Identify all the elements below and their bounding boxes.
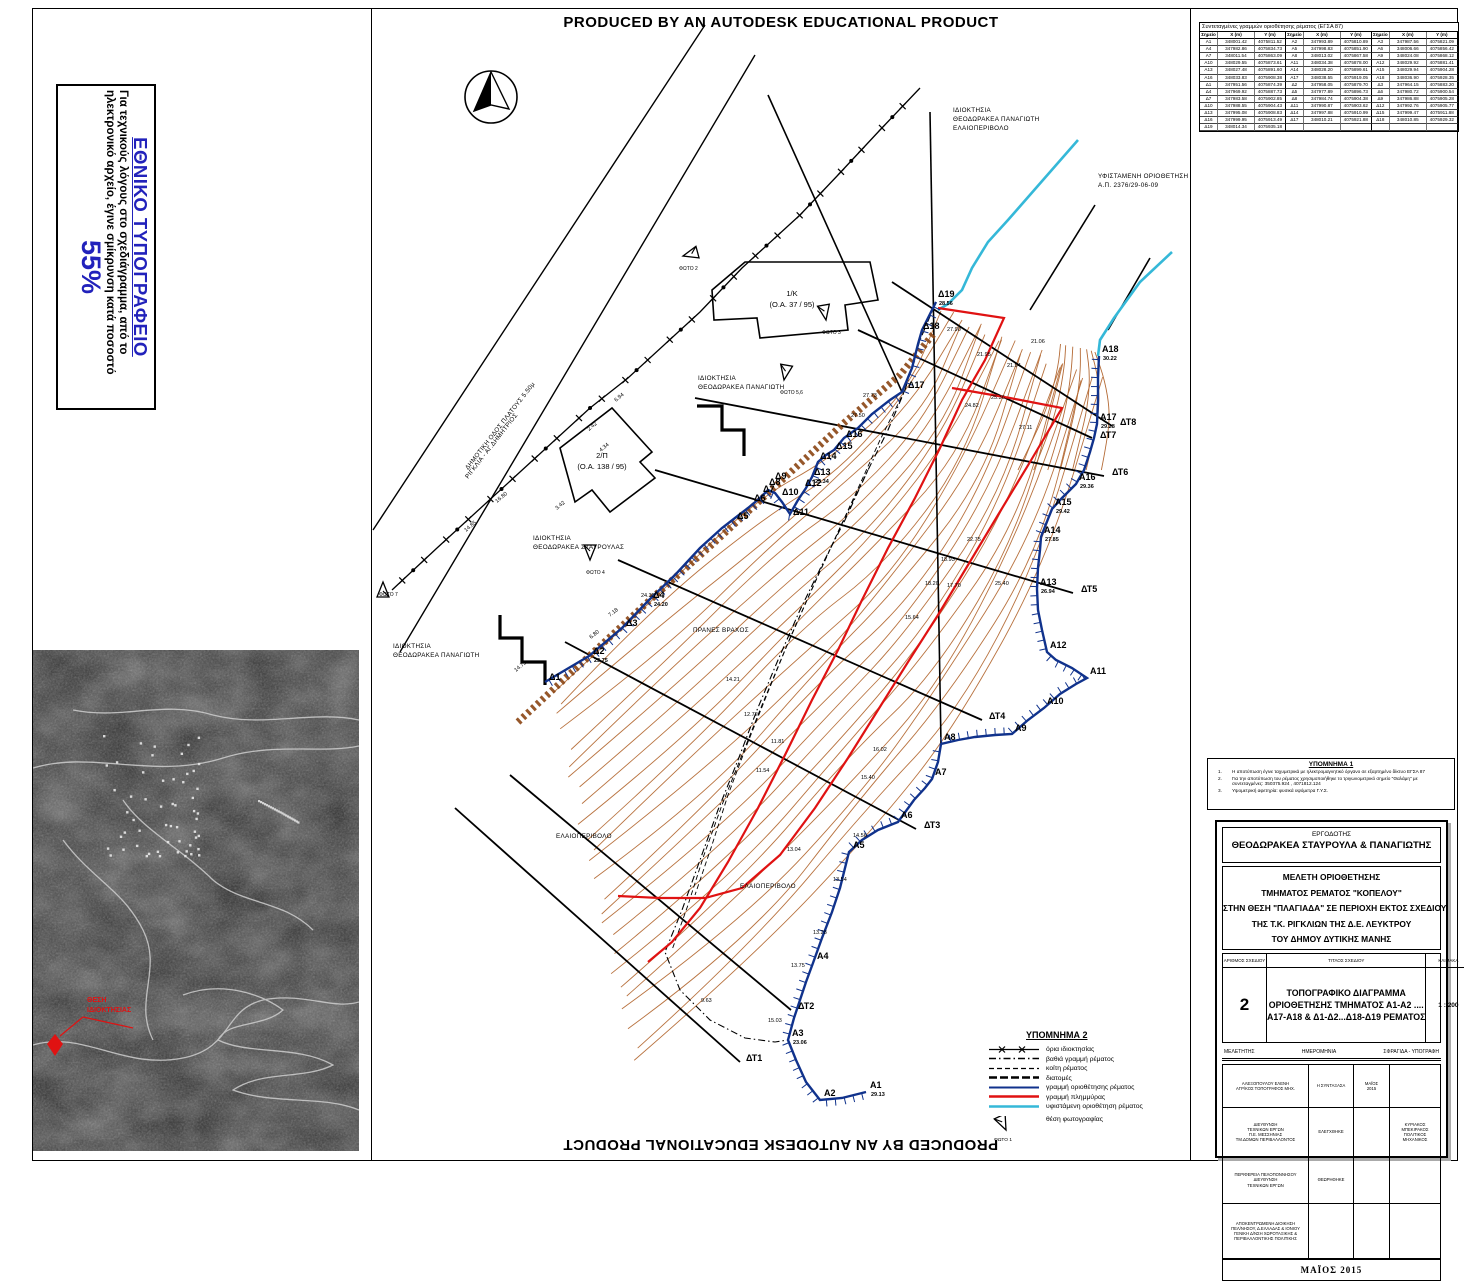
legend-item-existing: υφιστάμενη οριοθέτηση ρέματος bbox=[988, 1102, 1156, 1112]
coords-cell: 347964.15 bbox=[1390, 82, 1427, 89]
coords-cell: Δ18 bbox=[1372, 117, 1390, 124]
map-area-label: ΔΗΜΟΤΙΚΗ ΟΔΟΣ ΠΛΑΤΟΥΣ 5.50μ bbox=[464, 381, 537, 471]
map-point-label: Δ9 bbox=[775, 471, 786, 481]
map-area-label: ΕΛΑΙΟΠΕΡΙΒΟΛΟ bbox=[740, 883, 796, 890]
coords-cell: Α3 bbox=[1372, 39, 1390, 46]
coords-cell: Α15 bbox=[1372, 67, 1390, 74]
coords-cell: 347998.83 bbox=[1304, 46, 1341, 53]
coords-cell: 4075867.58 bbox=[1341, 53, 1372, 60]
coords-cell: 348013.02 bbox=[1304, 53, 1341, 60]
legend-item-label: υφιστάμενη οριοθέτηση ρέματος bbox=[1046, 1103, 1143, 1110]
coords-cell: 348001.42 bbox=[1218, 39, 1255, 46]
photo-position-icon: ΦΩΤΟ 3 bbox=[817, 304, 840, 336]
map-point-label: Δ3 bbox=[626, 618, 637, 628]
coords-cell: 4075921.88 bbox=[1341, 117, 1372, 124]
map-point-label: Α4 bbox=[817, 951, 829, 961]
signature-cell: ΚΥΡΙΑΚΟΣ ΜΠΕΚΙΡΑΚΟΣΠΟΛΙΤΙΚΟΣ ΜΗΧΑΝΙΚΟΣ bbox=[1390, 1108, 1440, 1157]
map-measure: 7.18 bbox=[608, 607, 620, 618]
coords-cell: Α8 bbox=[1286, 53, 1304, 60]
drawing-scale-header: ΚΛΙΜΑΚΑ bbox=[1426, 954, 1464, 968]
map-point-label: ΔΤ3 bbox=[924, 820, 940, 830]
map-point-elevation: 28.56 bbox=[939, 301, 953, 307]
map-measure: 13.54 bbox=[833, 877, 847, 883]
coords-cell: 4075879.70 bbox=[1341, 82, 1372, 89]
coords-cell: Α4 bbox=[1200, 46, 1218, 53]
signature-grid: ΑΛΕΞΟΠΟΥΛΟΥ ΕΛΕΝΗΑΓΡ/ΚΟΣ ΤΟΠΟΓΡΑΦΟΣ ΜΗΧ.… bbox=[1222, 1064, 1441, 1259]
map-labels: Δ1Δ223.75Δ3Δ424.20Δ5Δ6Δ7Δ8Δ9Δ10Δ11Δ12Δ13… bbox=[377, 107, 1189, 1098]
coords-cell: Δ4 bbox=[1200, 89, 1218, 96]
map-area-label: ΙΔΙΟΚΤΗΣΙΑ bbox=[393, 643, 432, 650]
map-point-elevation: 27.85 bbox=[1045, 537, 1059, 543]
coords-cell: 4075810.89 bbox=[1341, 39, 1372, 46]
coords-cell: 4075904.43 bbox=[1255, 103, 1286, 110]
note-box: ΥΠΟΜΝΗΜΑ 1 1.Η αποτύπωση έγινε ταχυμετρι… bbox=[1207, 758, 1455, 810]
coords-cell: Δ13 bbox=[1200, 110, 1218, 117]
signature-cell bbox=[1390, 1157, 1440, 1204]
drawing-title-line: ΟΡΙΟΘΕΤΗΣΗΣ ΤΜΗΜΑΤΟΣ Α1-Α2 .... bbox=[1269, 999, 1424, 1011]
coords-cell: 348029.55 bbox=[1218, 60, 1255, 67]
map-point-elevation: 23.06 bbox=[793, 1040, 807, 1046]
map-point-label: ΔΤ8 bbox=[1120, 417, 1136, 427]
study-title-line: ΤΜΗΜΑΤΟΣ ΡΕΜΑΤΟΣ "ΚΟΠΕΛΟΥ" bbox=[1223, 886, 1440, 902]
coords-cell: 348034.38 bbox=[1304, 60, 1341, 67]
coords-cell: 347987.56 bbox=[1390, 39, 1427, 46]
coords-cell: 348029.94 bbox=[1390, 67, 1427, 74]
coords-cell: 347995.08 bbox=[1218, 110, 1255, 117]
map-area-label: ΘΕΟΔΩΡΑΚΕΑ ΠΑΝΑΓΙΩΤΗ bbox=[393, 652, 480, 659]
map-measure: 21.95 bbox=[977, 352, 991, 358]
coords-cell: 347999.95 bbox=[1218, 117, 1255, 124]
coords-cell: Δ16 bbox=[1200, 117, 1218, 124]
map-point-label: Α8 bbox=[944, 732, 956, 742]
drawing-title-line: ΤΟΠΟΓΡΑΦΙΚΟ ΔΙΑΓΡΑΜΜΑ bbox=[1286, 987, 1405, 999]
coords-cell: 347983.58 bbox=[1218, 96, 1255, 103]
map-point-label: Α1 bbox=[870, 1080, 882, 1090]
map-point-label: Δ18 bbox=[923, 321, 939, 331]
role-cell: ΘΕΩΡΗΘΗΚΕ bbox=[1309, 1157, 1354, 1204]
coords-cell: 347993.89 bbox=[1304, 39, 1341, 46]
legend-item-photo: ΦΩΤΟ 1θέση φωτογραφίας bbox=[988, 1116, 1156, 1146]
map-measure: 6.80 bbox=[589, 629, 601, 640]
coords-cell: 347992.76 bbox=[1390, 103, 1427, 110]
coords-cell: 347982.86 bbox=[1218, 46, 1255, 53]
map-point-label: ΔΤ5 bbox=[1081, 584, 1097, 594]
map-point-label: Δ13 bbox=[814, 467, 830, 477]
coords-header-cell: Y (m) bbox=[1427, 32, 1458, 39]
note-item: 2.Για την αποτύπωση του ρέματος χρησιμοπ… bbox=[1212, 776, 1450, 787]
map-measure: 27.73 bbox=[863, 393, 877, 399]
coords-cell: Δ10 bbox=[1200, 103, 1218, 110]
coords-cell: Δ17 bbox=[1286, 117, 1304, 124]
photo-position-icon: ΦΩΤΟ 7 bbox=[377, 582, 398, 598]
signature-cell bbox=[1390, 1065, 1440, 1108]
coords-header-cell: Σημείο bbox=[1372, 32, 1390, 39]
coords-cell: 4075868.12 bbox=[1427, 53, 1458, 60]
coords-cell bbox=[1372, 124, 1390, 131]
role-sig: ΣΦΡΑΓΙΔΑ - ΥΠΟΓΡΑΦΗ bbox=[1383, 1049, 1439, 1055]
map-measure: 27.11 bbox=[1019, 425, 1032, 431]
coords-cell: Δ5 bbox=[1286, 89, 1304, 96]
coords-cell: Α9 bbox=[1372, 53, 1390, 60]
coords-cell: Α1 bbox=[1200, 39, 1218, 46]
coords-cell: Δ6 bbox=[1372, 89, 1390, 96]
svg-text:ΦΩΤΟ 1: ΦΩΤΟ 1 bbox=[994, 1137, 1012, 1142]
coords-cell: Δ1 bbox=[1200, 82, 1218, 89]
coords-cell: 348024.08 bbox=[1390, 53, 1427, 60]
coords-cell: 4075904.38 bbox=[1341, 96, 1372, 103]
legend-item-label: θέση φωτογραφίας bbox=[1046, 1116, 1103, 1123]
coords-cell: 4075908.38 bbox=[1255, 75, 1286, 82]
coordinates-table-title: Συντεταγμένες γραμμών οριοθέτησης ρέματο… bbox=[1200, 23, 1458, 32]
map-measure: 24.82 bbox=[965, 403, 979, 409]
study-title-line: ΜΕΛΕΤΗ ΟΡΙΟΘΕΤΗΣΗΣ bbox=[1223, 870, 1440, 886]
date-cell bbox=[1354, 1204, 1390, 1259]
coords-header-cell: Y (m) bbox=[1255, 32, 1286, 39]
role-melet: ΜΕΛΕΤΗΤΗΣ bbox=[1224, 1049, 1255, 1055]
coords-cell: 348038.55 bbox=[1304, 75, 1341, 82]
coords-cell: Α14 bbox=[1286, 67, 1304, 74]
coords-cell bbox=[1286, 124, 1304, 131]
map-point-label: Α12 bbox=[1050, 640, 1067, 650]
map-measure: 9.63 bbox=[701, 998, 712, 1004]
map-area-label: ΙΔΙΟΚΤΗΣΙΑ bbox=[953, 107, 992, 114]
map-measure: 3.42 bbox=[554, 500, 566, 511]
coords-cell: Α16 bbox=[1200, 75, 1218, 82]
map-point-label: Δ1 bbox=[549, 672, 560, 682]
map-point-label: ΔΤ7 bbox=[1100, 430, 1116, 440]
map-measure: 25.40 bbox=[995, 581, 1009, 587]
map-area-label: ΙΔΙΟΚΤΗΣΙΑ bbox=[698, 375, 737, 382]
coords-cell: 4075902.85 bbox=[1255, 96, 1286, 103]
coords-cell: Α13 bbox=[1200, 67, 1218, 74]
coords-header-cell: X (m) bbox=[1390, 32, 1427, 39]
coords-cell: 348033.83 bbox=[1218, 75, 1255, 82]
map-measure: 21.06 bbox=[1031, 339, 1045, 345]
map-measure: 14.56 bbox=[853, 833, 867, 839]
date-cell: ΜΑΪΟΣ2015 bbox=[1354, 1065, 1390, 1108]
coords-cell: 4075887.73 bbox=[1255, 89, 1286, 96]
employer-heading: ΕΡΓΟΔΟΤΗΣ bbox=[1223, 831, 1440, 838]
note-item: 1.Η αποτύπωση έγινε ταχυμετρικά με ηλεκτ… bbox=[1212, 769, 1450, 775]
employer-name: ΘΕΟΔΩΡΑΚΕΑ ΣΤΑΥΡΟΥΛΑ & ΠΑΝΑΓΙΩΤΗΣ bbox=[1223, 840, 1440, 851]
coords-cell: Δ2 bbox=[1286, 82, 1304, 89]
signature-cell bbox=[1390, 1204, 1440, 1259]
map-point-elevation: 30.22 bbox=[1103, 356, 1117, 362]
role-cell bbox=[1309, 1204, 1354, 1259]
coords-cell: 4075905.77 bbox=[1427, 103, 1458, 110]
signer-cell: ΔΙΕΥΘΥΝΣΗΤΕΧΝΙΚΩΝ ΕΡΓΩΝΠ.Ε. ΜΕΣΣΗΝΙΑΣΤΜ.… bbox=[1223, 1108, 1309, 1157]
coords-header-cell: Σημείο bbox=[1200, 32, 1218, 39]
coords-cell: 348029.92 bbox=[1390, 60, 1427, 67]
map-area-label: Α.Π. 2376/29-06-09 bbox=[1098, 182, 1159, 189]
map-area-label: ΕΛΑΙΟΠΕΡΙΒΟΛΟ bbox=[953, 125, 1009, 132]
map-measure: 17.70 bbox=[947, 583, 961, 589]
photo-label: ΦΩΤΟ 3 bbox=[822, 330, 841, 336]
map-measure: 16.02 bbox=[873, 747, 887, 753]
building-label: (Ο.Α. 138 / 95) bbox=[577, 462, 627, 471]
coords-header-cell: Y (m) bbox=[1341, 32, 1372, 39]
map-point-label: Α5 bbox=[853, 840, 865, 850]
legend-item-label: όρια ιδιοκτησίας bbox=[1046, 1046, 1094, 1053]
coords-cell bbox=[1341, 124, 1372, 131]
photo-legend-swatch: ΦΩΤΟ 1 bbox=[988, 1116, 1040, 1142]
map-measure: 12.72 bbox=[744, 712, 758, 718]
map-measure: 18.93 bbox=[941, 557, 955, 563]
map-area-label: ΕΛΑΙΟΠΕΡΙΒΟΛΟ bbox=[556, 833, 612, 840]
coords-cell: Α11 bbox=[1286, 60, 1304, 67]
note-box-title: ΥΠΟΜΝΗΜΑ 1 bbox=[1212, 761, 1450, 768]
date-cell bbox=[1354, 1108, 1390, 1157]
map-measure: 18.20 bbox=[925, 581, 939, 587]
drawing-number: 2 bbox=[1223, 968, 1267, 1042]
coords-cell: Α5 bbox=[1286, 46, 1304, 53]
coords-cell: Δ14 bbox=[1286, 110, 1304, 117]
coords-cell: 347997.88 bbox=[1304, 110, 1341, 117]
coords-cell: Α7 bbox=[1200, 53, 1218, 60]
coords-cell: 347988.55 bbox=[1218, 103, 1255, 110]
map-area-label: ΙΔΙΟΚΤΗΣΙΑ bbox=[533, 535, 572, 542]
coords-header-cell: Σημείο bbox=[1286, 32, 1304, 39]
building-label: 2/Π bbox=[596, 451, 608, 460]
photo-label: ΦΩΤΟ 7 bbox=[379, 592, 398, 598]
coords-cell: 4075863.09 bbox=[1255, 53, 1286, 60]
map-measure: 11.81 bbox=[771, 739, 784, 745]
coords-cell: 4075896.73 bbox=[1341, 89, 1372, 96]
map-point-label: Α6 bbox=[901, 810, 913, 820]
map-point-label: Δ19 bbox=[938, 289, 954, 299]
map-point-label: Δ15 bbox=[836, 441, 852, 451]
coords-cell: 4075881.41 bbox=[1427, 60, 1458, 67]
legend-item-label: διατομές bbox=[1046, 1075, 1072, 1082]
map-measure: 11.54 bbox=[756, 768, 769, 774]
coords-cell: 347980.72 bbox=[1390, 89, 1427, 96]
map-area-label: ΡΙΓΚΛΙΑ - ΑΓ.ΔΗΜΗΤΡΙΟΣ bbox=[464, 412, 519, 480]
map-point-label: Α14 bbox=[1044, 525, 1061, 535]
coords-cell: 4075891.60 bbox=[1255, 67, 1286, 74]
map-point-label: Δ2 bbox=[593, 646, 604, 656]
map-point-elevation: 25.34 bbox=[815, 479, 830, 485]
drawing-number-header: ΑΡΙΘΜΟΣ ΣΧΕΔΙΟΥ bbox=[1223, 954, 1267, 968]
map-point-elevation: 29.36 bbox=[1080, 484, 1094, 490]
map-point-label: Α18 bbox=[1102, 344, 1119, 354]
study-title-line: ΤΗΣ Τ.Κ. ΡΙΓΚΛΙΩΝ ΤΗΣ Δ.Ε. ΛΕΥΚΤΡΟΥ bbox=[1223, 917, 1440, 933]
coords-cell: 4075929.32 bbox=[1427, 117, 1458, 124]
titleblock-date: ΜΑΪΟΣ 2015 bbox=[1222, 1259, 1441, 1281]
map-measure: 15.03 bbox=[768, 1018, 782, 1024]
map-measure: 14.21 bbox=[726, 677, 740, 683]
coords-cell bbox=[1427, 124, 1458, 131]
coords-cell: Δ12 bbox=[1372, 103, 1390, 110]
map-point-label: Δ6 bbox=[754, 493, 765, 503]
map-point-label: Α3 bbox=[792, 1028, 804, 1038]
map-point-label: ΔΤ1 bbox=[746, 1053, 762, 1063]
drawing-title-line: Α17-Α18 & Δ1-Δ2...Δ18-Δ19 ΡΕΜΑΤΟΣ bbox=[1267, 1011, 1425, 1023]
map-measure: 15.40 bbox=[861, 775, 875, 781]
map-measure: 13.04 bbox=[787, 847, 801, 853]
map-measure: 27.90 bbox=[947, 327, 961, 333]
coords-cell: 347990.87 bbox=[1304, 103, 1341, 110]
coords-cell: 347977.89 bbox=[1304, 89, 1341, 96]
coords-cell: 4075904.28 bbox=[1427, 67, 1458, 74]
coords-cell: 4075883.20 bbox=[1427, 82, 1458, 89]
coords-cell: Δ8 bbox=[1286, 96, 1304, 103]
roles-header: ΜΕΛΕΤΗΤΗΣ ΗΜΕΡΟΜΗΝΙΑ ΣΦΡΑΓΙΔΑ - ΥΠΟΓΡΑΦΗ bbox=[1222, 1045, 1441, 1061]
coords-header-cell: X (m) bbox=[1218, 32, 1255, 39]
coords-cell: 4075900.54 bbox=[1427, 89, 1458, 96]
coords-cell bbox=[1390, 124, 1427, 131]
photo-label: ΦΩΤΟ 4 bbox=[586, 570, 605, 576]
map-measure: 25.36 bbox=[991, 395, 1005, 401]
building-label: (Ο.Α. 37 / 95) bbox=[769, 300, 815, 309]
map-point-label: Δ16 bbox=[846, 429, 862, 439]
coords-cell: 4075851.90 bbox=[1341, 46, 1372, 53]
map-point-label: ΔΤ6 bbox=[1112, 467, 1128, 477]
note-item: 3.Υψομετρική αφετηρία: φυσικά υψόμετρα Γ… bbox=[1212, 788, 1450, 794]
legend-item-label: βαθιά γραμμή ρέματος bbox=[1046, 1056, 1114, 1063]
map-area-label: ΥΦΙΣΤΑΜΕΝΗ ΟΡΙΟΘΕΤΗΣΗ bbox=[1098, 173, 1189, 180]
coords-cell: 4075928.35 bbox=[1427, 75, 1458, 82]
coords-cell: 4075905.28 bbox=[1427, 96, 1458, 103]
coords-cell: 348014.34 bbox=[1218, 124, 1255, 131]
coords-cell: Α12 bbox=[1372, 60, 1390, 67]
study-title-line: ΣΤΗΝ ΘΕΣΗ "ΠΛΑΓΙΑΔΑ" ΣΕ ΠΕΡΙΟΧΗ ΕΚΤΟΣ ΣΧ… bbox=[1223, 901, 1440, 917]
coords-cell: 4075899.61 bbox=[1341, 67, 1372, 74]
map-point-label: Δ5 bbox=[737, 511, 748, 521]
coords-cell: Α10 bbox=[1200, 60, 1218, 67]
date-cell bbox=[1354, 1157, 1390, 1204]
map-measure: 15.64 bbox=[905, 615, 919, 621]
coords-cell: 4075856.42 bbox=[1427, 46, 1458, 53]
coords-cell: Δ3 bbox=[1372, 82, 1390, 89]
map-area-label: ΘΕΟΔΩΡΑΚΕΑ ΠΑΝΑΓΙΩΤΗ bbox=[953, 116, 1040, 123]
photo-position-icon: ΦΩΤΟ 5,6 bbox=[778, 364, 803, 396]
coords-cell: Δ15 bbox=[1372, 110, 1390, 117]
coords-cell: Δ7 bbox=[1200, 96, 1218, 103]
coords-cell: 4075910.99 bbox=[1341, 110, 1372, 117]
map-point-label: Α11 bbox=[1090, 666, 1106, 676]
map-measure: 13.75 bbox=[791, 963, 805, 969]
stream-deep-line bbox=[665, 302, 936, 1042]
coords-cell: Δ19 bbox=[1200, 124, 1218, 131]
coords-cell: 347984.74 bbox=[1304, 96, 1341, 103]
coords-cell: 4075919.05 bbox=[1341, 75, 1372, 82]
signer-cell: ΠΕΡΙΦΕΡΕΙΑ ΠΕΛΟΠΟΝΝΗΣΟΥΔΙΕΥΘΥΝΣΗΤΕΧΝΙΚΩΝ… bbox=[1223, 1157, 1309, 1204]
coords-cell: Α18 bbox=[1372, 75, 1390, 82]
map-point-elevation: 24.20 bbox=[654, 602, 668, 608]
photo-label: ΦΩΤΟ 5,6 bbox=[780, 390, 803, 396]
legend-item-label: γραμμή οριοθέτησης ρέματος bbox=[1046, 1084, 1134, 1091]
coords-cell: 348027.48 bbox=[1218, 67, 1255, 74]
map-point-label: Α2 bbox=[824, 1088, 836, 1098]
legend-title: ΥΠΟΜΝΗΜΑ 2 bbox=[1026, 1030, 1156, 1040]
coords-cell: 4075935.18 bbox=[1255, 124, 1286, 131]
coords-cell: Δ11 bbox=[1286, 103, 1304, 110]
map-measure: 21.94 bbox=[1007, 363, 1021, 369]
coords-cell: 4075821.09 bbox=[1427, 39, 1458, 46]
coords-cell: 348010.21 bbox=[1304, 117, 1341, 124]
coords-header-cell: X (m) bbox=[1304, 32, 1341, 39]
coords-cell: 347999.47 bbox=[1390, 110, 1427, 117]
coords-cell: 347958.05 bbox=[1304, 82, 1341, 89]
coords-cell: 4075811.52 bbox=[1255, 39, 1286, 46]
coordinates-table: Συντεταγμένες γραμμών οριοθέτησης ρέματο… bbox=[1199, 22, 1459, 132]
map-point-elevation: 29.13 bbox=[871, 1092, 885, 1098]
map-point-label: Δ11 bbox=[793, 507, 809, 517]
map-point-elevation: 23.75 bbox=[594, 658, 608, 664]
coords-cell: 348036.90 bbox=[1390, 75, 1427, 82]
map-point-label: Α9 bbox=[1015, 723, 1027, 733]
photo-label: ΦΩΤΟ 2 bbox=[679, 266, 698, 272]
map-measure: 22.75 bbox=[967, 537, 981, 543]
map-point-elevation: 29.42 bbox=[1056, 509, 1070, 515]
drawing-title-header: ΤΙΤΛΟΣ ΣΧΕΔΙΟΥ bbox=[1267, 954, 1426, 968]
map-point-label: Δ17 bbox=[908, 380, 924, 390]
drawing-title: ΤΟΠΟΓΡΑΦΙΚΟ ΔΙΑΓΡΑΜΜΑΟΡΙΟΘΕΤΗΣΗΣ ΤΜΗΜΑΤΟ… bbox=[1267, 968, 1426, 1042]
coords-cell: 4075834.73 bbox=[1255, 46, 1286, 53]
coords-cell: 348011.54 bbox=[1218, 53, 1255, 60]
map-measure: 27.50 bbox=[851, 413, 865, 419]
map-area-label: ΘΕΟΔΩΡΑΚΕΑ ΠΑΝΑΓΙΩΤΗ bbox=[698, 384, 785, 391]
map-area-label: ΘΕΟΔΩΡΑΚΕΑ ΣΤΑΥΡΟΥΛΑΣ bbox=[533, 544, 624, 551]
legend-item-label: γραμμή πλημμύρας bbox=[1046, 1094, 1105, 1101]
existing-legend-swatch bbox=[988, 1102, 1040, 1111]
photo-position-icon: ΦΩΤΟ 2 bbox=[679, 246, 699, 272]
study-title: ΜΕΛΕΤΗ ΟΡΙΟΘΕΤΗΣΗΣΤΜΗΜΑΤΟΣ ΡΕΜΑΤΟΣ "ΚΟΠΕ… bbox=[1222, 866, 1441, 950]
role-cell: ΕΛΕΓΧΘΗΚΕ bbox=[1309, 1108, 1354, 1157]
coords-cell: Α6 bbox=[1372, 46, 1390, 53]
map-point-label: Α10 bbox=[1047, 696, 1064, 706]
coords-cell: 348006.66 bbox=[1390, 46, 1427, 53]
map-point-label: ΔΤ2 bbox=[798, 1001, 814, 1011]
map-point-label: Α13 bbox=[1040, 577, 1057, 587]
map-point-label: ΔΤ4 bbox=[989, 711, 1005, 721]
map-point-label: Δ14 bbox=[820, 451, 836, 461]
map-measure: 24.35 bbox=[641, 593, 655, 599]
map-point-label: Α15 bbox=[1055, 497, 1072, 507]
coords-cell: 4075903.62 bbox=[1341, 103, 1372, 110]
title-block: ΕΡΓΟΔΟΤΗΣ ΘΕΟΔΩΡΑΚΕΑ ΣΤΑΥΡΟΥΛΑ & ΠΑΝΑΓΙΩ… bbox=[1215, 820, 1448, 1158]
map-point-label: Δ10 bbox=[782, 487, 798, 497]
study-title-line: ΤΟΥ ΔΗΜΟΥ ΔΥΤΙΚΗΣ ΜΑΝΗΣ bbox=[1223, 932, 1440, 948]
coords-cell: 347951.56 bbox=[1218, 82, 1255, 89]
coords-cell: Α2 bbox=[1286, 39, 1304, 46]
coords-cell: 4075913.49 bbox=[1255, 117, 1286, 124]
map-measure: 13.28 bbox=[813, 930, 827, 936]
coords-cell: 4075878.00 bbox=[1341, 60, 1372, 67]
map-point-label: Α17 bbox=[1100, 412, 1117, 422]
signer-cell: ΑΠΟΚΕΝΤΡΩΜΕΝΗ ΔΙΟΙΚΗΣΗΠΕΛ/ΝΗΣΟΥ, Δ.ΕΛΛΑΔ… bbox=[1223, 1204, 1309, 1259]
legend: ΥΠΟΜΝΗΜΑ 2 όρια ιδιοκτησίαςβαθιά γραμμή … bbox=[988, 1030, 1156, 1146]
coords-cell: Δ9 bbox=[1372, 96, 1390, 103]
map-area-label: ΠΡΑΝΕΣ ΒΡΑΧΟΣ bbox=[693, 627, 749, 634]
map-point-label: Α16 bbox=[1079, 472, 1096, 482]
coords-cell: 4075873.61 bbox=[1255, 60, 1286, 67]
coords-cell: 4075908.83 bbox=[1255, 110, 1286, 117]
coords-cell: Α17 bbox=[1286, 75, 1304, 82]
coords-cell: 348028.20 bbox=[1304, 67, 1341, 74]
role-cell: Η ΣΥΝΤΑΞΑΣΑ bbox=[1309, 1065, 1354, 1108]
legend-item-label: κοίτη ρέματος bbox=[1046, 1065, 1087, 1072]
coords-cell: 347986.88 bbox=[1390, 96, 1427, 103]
coords-cell: 348010.85 bbox=[1390, 117, 1427, 124]
drawing-info: ΑΡΙΘΜΟΣ ΣΧΕΔΙΟΥ ΤΙΤΛΟΣ ΣΧΕΔΙΟΥ ΚΛΙΜΑΚΑ 2… bbox=[1222, 953, 1441, 1043]
drawing-scale: 1 : 200 bbox=[1426, 968, 1464, 1042]
coords-cell: 4075874.39 bbox=[1255, 82, 1286, 89]
coords-cell: 347969.92 bbox=[1218, 89, 1255, 96]
map-point-elevation: 26.94 bbox=[1041, 589, 1056, 595]
map-measure: 6.94 bbox=[613, 392, 625, 403]
signer-cell: ΑΛΕΞΟΠΟΥΛΟΥ ΕΛΕΝΗΑΓΡ/ΚΟΣ ΤΟΠΟΓΡΑΦΟΣ ΜΗΧ. bbox=[1223, 1065, 1309, 1108]
